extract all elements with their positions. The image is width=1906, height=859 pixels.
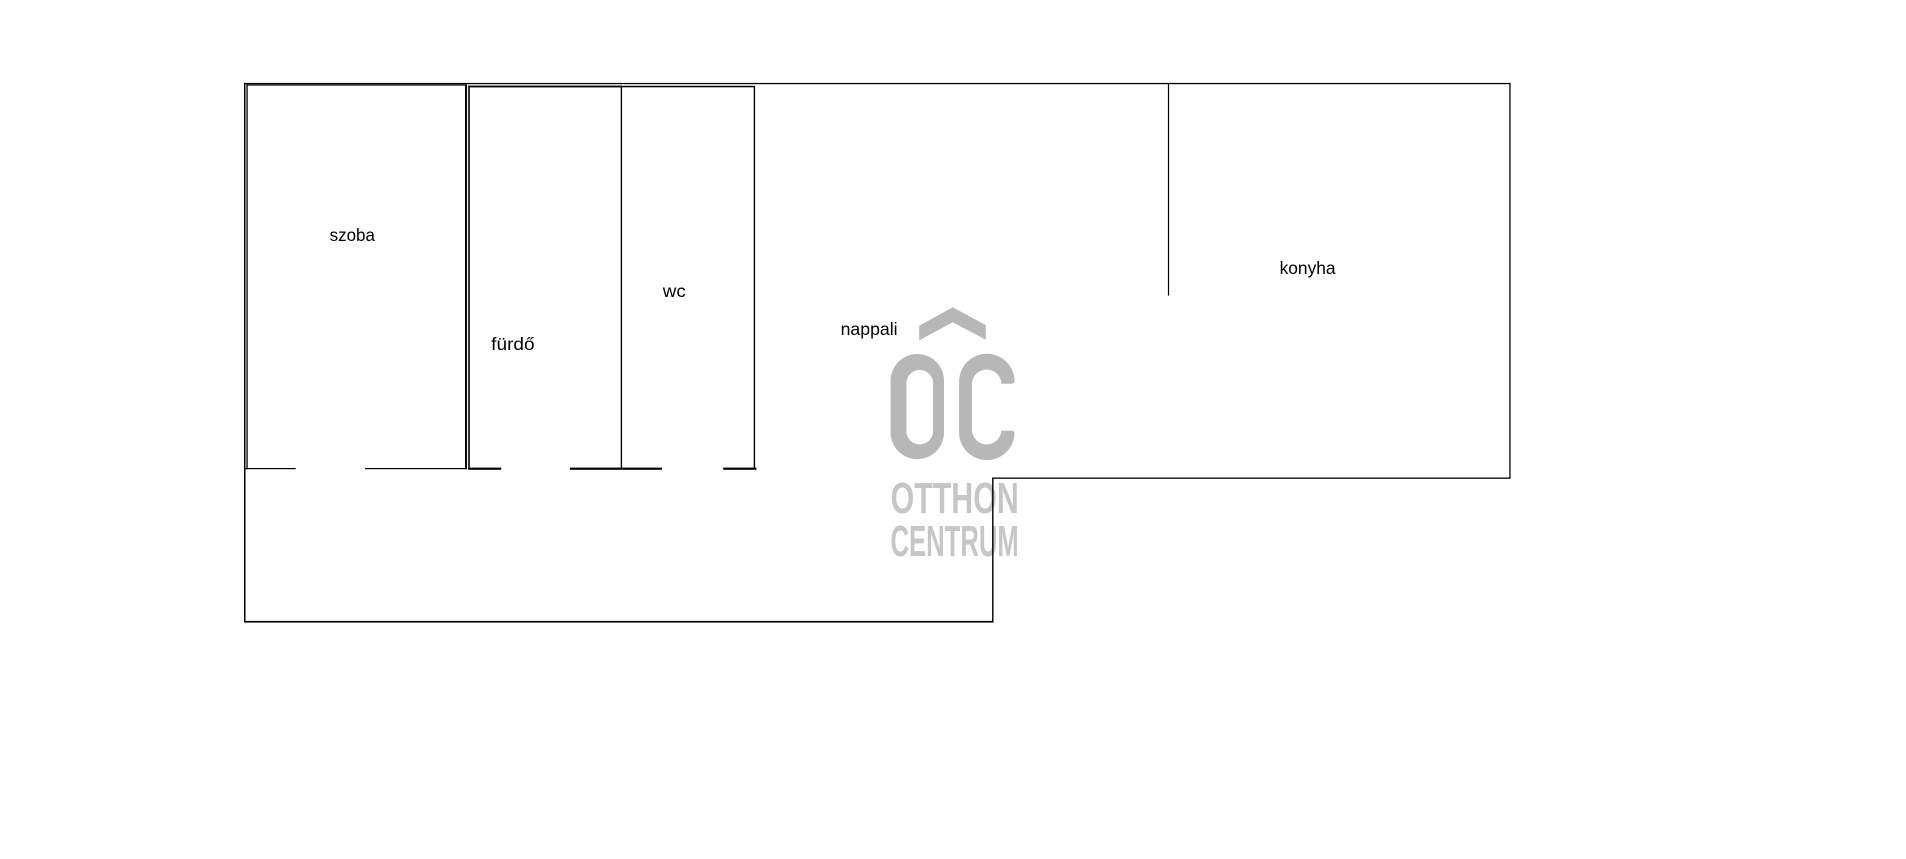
svg-text:szoba: szoba (330, 225, 376, 245)
svg-text:wc: wc (662, 281, 686, 301)
svg-text:fürdő: fürdő (491, 334, 535, 354)
svg-text:konyha: konyha (1280, 258, 1336, 278)
svg-text:OTTHON: OTTHON (891, 474, 1019, 523)
svg-text:CENTRUM: CENTRUM (891, 517, 1019, 566)
svg-text:nappali: nappali (841, 319, 898, 339)
